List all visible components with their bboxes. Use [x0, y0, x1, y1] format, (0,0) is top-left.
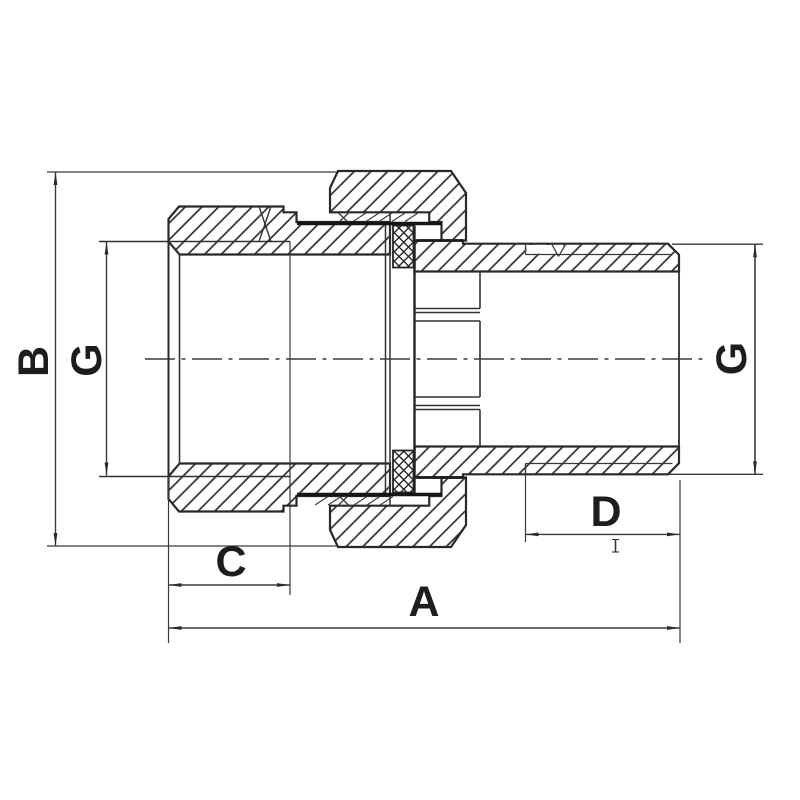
svg-text:D: D [590, 488, 621, 536]
svg-text:C: C [215, 538, 246, 586]
svg-text:G: G [63, 343, 111, 376]
svg-text:A: A [408, 578, 439, 626]
svg-text:G: G [708, 342, 756, 375]
svg-text:B: B [10, 346, 58, 377]
